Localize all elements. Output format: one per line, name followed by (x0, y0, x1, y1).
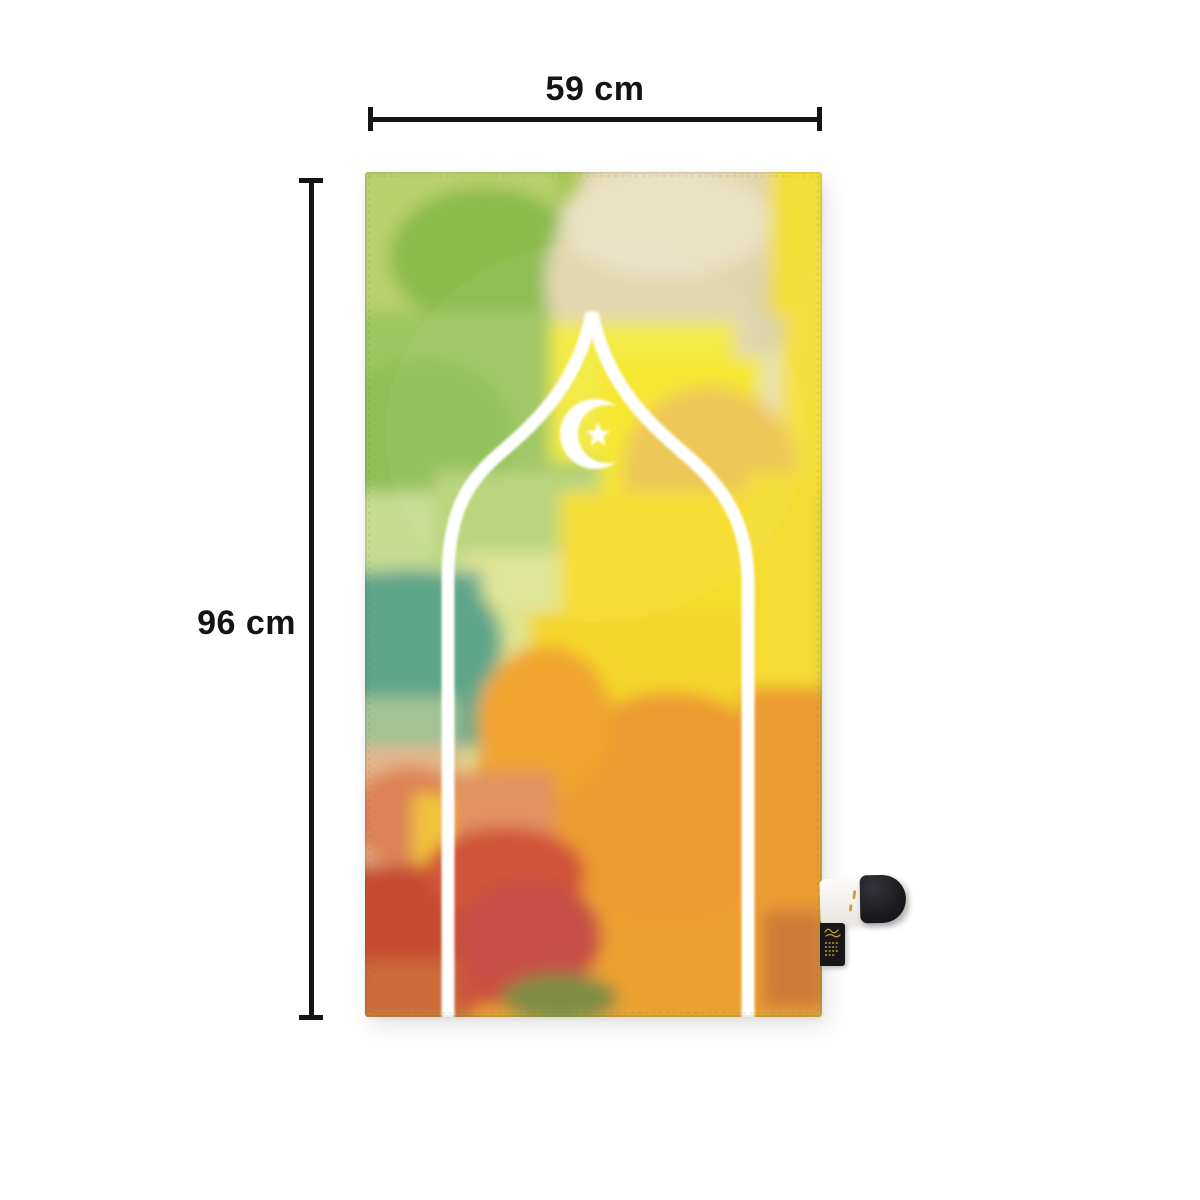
height-dimension-label: 96 cm (140, 606, 296, 640)
brand-label-script (820, 923, 845, 966)
dimension-line-horizontal (373, 117, 817, 122)
dimension-line-vertical (309, 183, 314, 1015)
gold-stitch (849, 904, 853, 911)
product-dimension-image: 59 cm 96 cm (0, 0, 1200, 1200)
gold-stitch (852, 890, 856, 899)
prayer-mat-artwork (365, 172, 822, 1017)
dimension-cap-bottom (299, 1015, 323, 1020)
dimension-cap-right (817, 107, 822, 131)
height-dimension-line (299, 178, 323, 1020)
prayer-mat (365, 172, 822, 1017)
width-dimension-label: 59 cm (368, 72, 822, 106)
width-dimension-line (368, 107, 822, 131)
fabric-sheen (385, 242, 805, 622)
brand-label (820, 923, 845, 966)
